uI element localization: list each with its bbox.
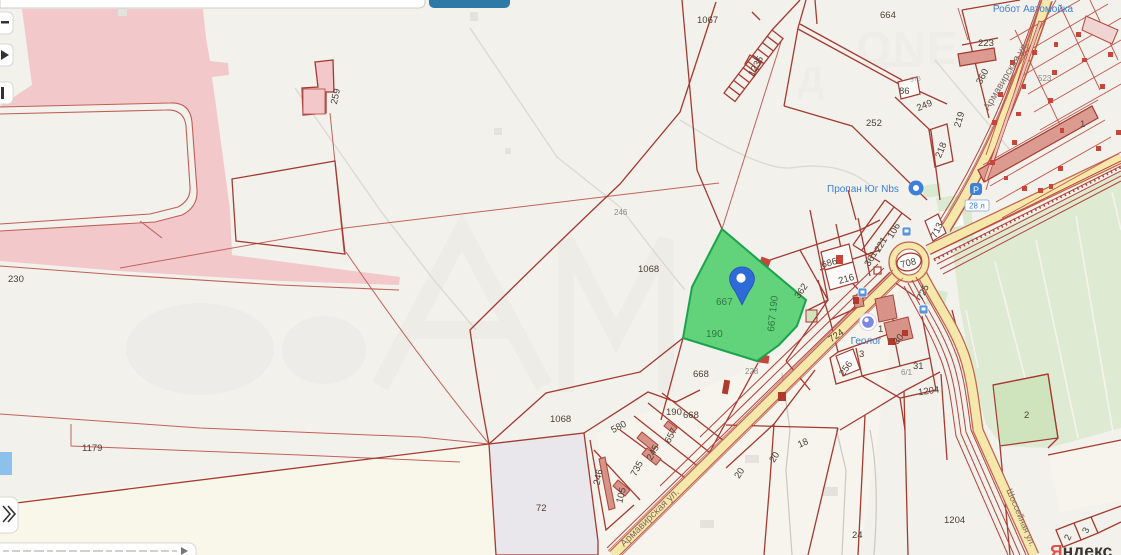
svg-text:230: 230	[8, 274, 24, 285]
svg-text:6/1: 6/1	[901, 368, 913, 377]
svg-text:24: 24	[852, 530, 863, 541]
svg-text:1: 1	[1080, 119, 1085, 130]
svg-text:1068: 1068	[638, 264, 659, 275]
svg-text:1: 1	[878, 324, 883, 335]
svg-text:28 л: 28 л	[969, 202, 985, 211]
svg-text:668: 668	[683, 410, 699, 421]
svg-text:3: 3	[859, 349, 864, 360]
svg-text:667: 667	[716, 297, 733, 308]
svg-text:223: 223	[978, 38, 994, 49]
svg-text:Пропан Юг Nbs: Пропан Юг Nbs	[827, 184, 899, 195]
svg-text:31: 31	[913, 361, 924, 372]
svg-text:1067: 1067	[697, 15, 718, 26]
svg-text:Д: Д	[798, 59, 824, 100]
svg-text:1068: 1068	[550, 414, 571, 425]
svg-text:1179: 1179	[82, 443, 102, 454]
svg-text:252: 252	[866, 118, 882, 129]
svg-text:P: P	[973, 185, 979, 195]
svg-text:Геолог: Геолог	[851, 336, 882, 347]
svg-text:86: 86	[899, 86, 910, 97]
svg-text:523: 523	[1038, 74, 1052, 83]
svg-text:Робот Автомойка: Робот Автомойка	[993, 3, 1074, 15]
svg-text:190: 190	[706, 329, 723, 340]
svg-text:664: 664	[880, 10, 896, 21]
svg-text:228: 228	[745, 367, 759, 376]
svg-text:72: 72	[536, 503, 547, 514]
svg-text:190: 190	[666, 407, 682, 418]
svg-text:1204: 1204	[944, 515, 965, 526]
svg-text:Яндекс: Яндекс	[1050, 541, 1113, 555]
svg-text:668: 668	[693, 369, 709, 380]
svg-text:246: 246	[614, 208, 628, 217]
svg-text:2: 2	[1024, 410, 1029, 421]
